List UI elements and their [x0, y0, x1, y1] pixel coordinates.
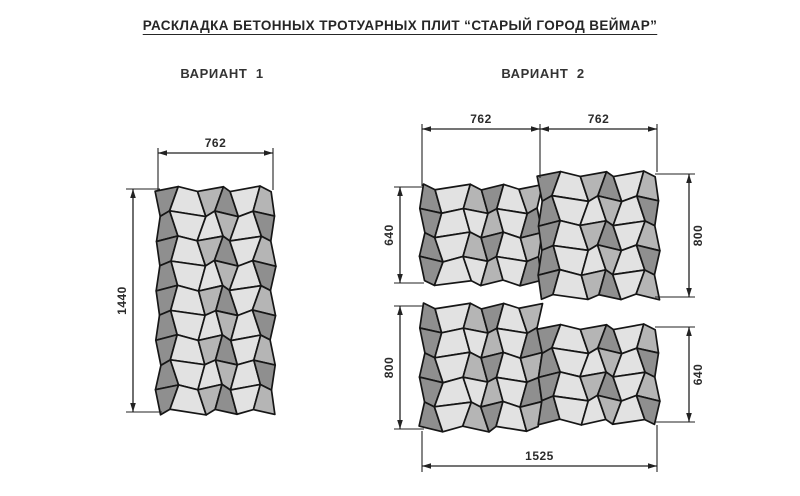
dimension-arrow — [397, 306, 403, 315]
dimension-arrow — [158, 150, 167, 156]
dimension-label: 800 — [382, 357, 396, 379]
dimension-label: 800 — [691, 225, 705, 247]
dimension-arrow — [422, 463, 431, 469]
dimension-arrow — [397, 274, 403, 283]
variant-1-label: ВАРИАНТ 1 — [180, 66, 263, 81]
tile-block-variant2-bottom-left — [419, 303, 542, 432]
dimension-arrow — [422, 126, 431, 132]
dimension-v2_bottom_right_height: 640 — [655, 327, 705, 422]
dimension-arrow — [540, 126, 549, 132]
dimension-arrow — [686, 413, 692, 422]
tile-block-variant2-top-right — [537, 171, 660, 300]
dimension-label: 762 — [588, 112, 610, 126]
tile-block-variant2-bottom-right — [537, 324, 660, 425]
dimension-v2_top_right_height: 800 — [655, 174, 705, 297]
dimension-arrow — [130, 403, 136, 412]
tile-block-variant2-top-left — [419, 184, 542, 286]
dimension-v2_top_left_height: 640 — [382, 187, 424, 283]
dimension-arrow — [648, 463, 657, 469]
tile-block-variant1 — [155, 186, 276, 415]
dimension-arrow — [531, 126, 540, 132]
dimension-arrow — [130, 189, 136, 198]
dimension-v1_width: 762 — [158, 136, 273, 190]
dimension-v2_total_width: 1525 — [422, 425, 657, 472]
dimension-arrow — [264, 150, 273, 156]
page-title: РАСКЛАДКА БЕТОННЫХ ТРОТУАРНЫХ ПЛИТ “СТАР… — [0, 18, 800, 33]
dimension-label: 1440 — [115, 286, 129, 315]
dimension-arrow — [686, 288, 692, 297]
dimension-label: 640 — [691, 364, 705, 386]
drawing-page: РАСКЛАДКА БЕТОННЫХ ТРОТУАРНЫХ ПЛИТ “СТАР… — [0, 0, 800, 496]
dimension-label: 762 — [205, 136, 227, 150]
dimension-arrow — [648, 126, 657, 132]
dimension-v2_top_right_width: 762 — [540, 112, 657, 172]
dimension-label: 762 — [470, 112, 492, 126]
dimension-arrow — [686, 327, 692, 336]
dimension-v2_top_left_width: 762 — [422, 112, 540, 186]
dimension-arrow — [397, 187, 403, 196]
variant-2-label: ВАРИАНТ 2 — [501, 66, 584, 81]
dimension-arrow — [686, 174, 692, 183]
paving-layout-drawing: 76214407627626408008006401525 — [0, 0, 800, 496]
dimension-arrow — [397, 420, 403, 429]
dimension-v2_bottom_left_height: 800 — [382, 306, 424, 429]
dimension-label: 1525 — [525, 449, 554, 463]
dimension-v1_height: 1440 — [115, 189, 162, 412]
dimension-label: 640 — [382, 224, 396, 246]
page-title-text: РАСКЛАДКА БЕТОННЫХ ТРОТУАРНЫХ ПЛИТ “СТАР… — [143, 18, 658, 33]
